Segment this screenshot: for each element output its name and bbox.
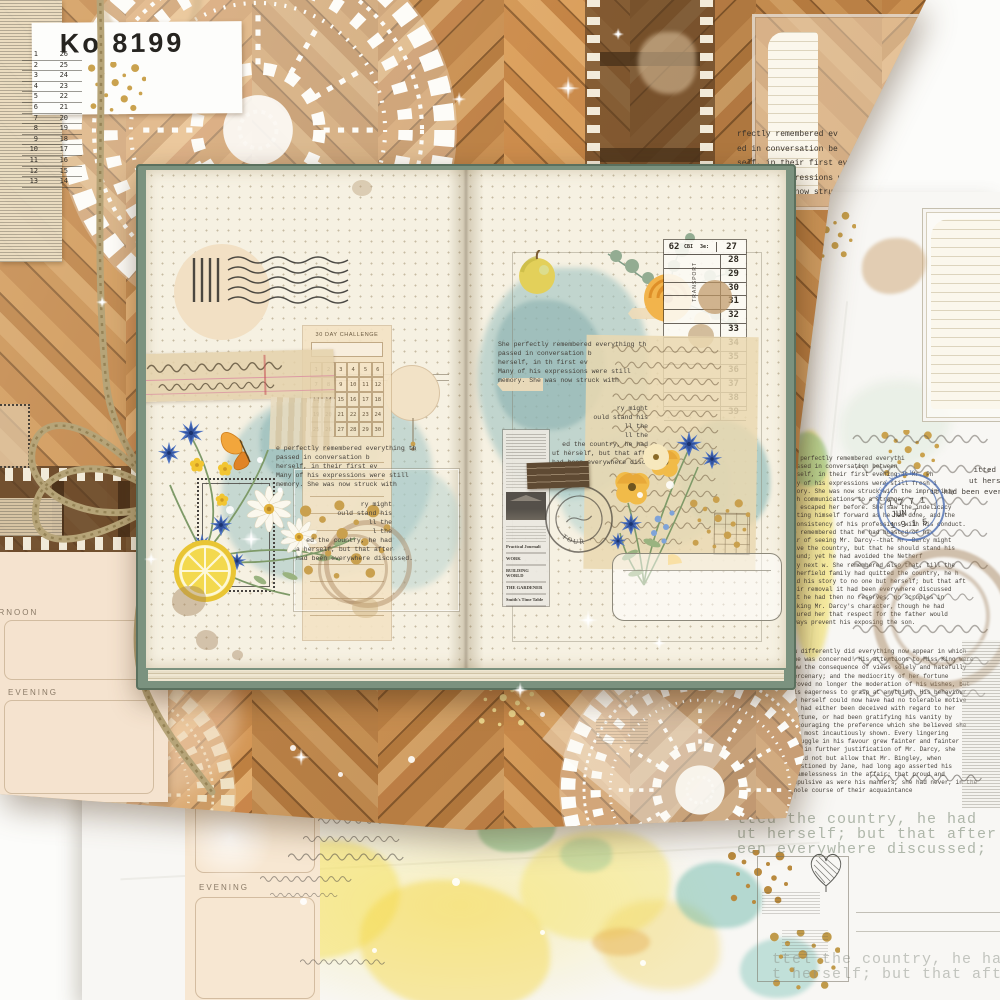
page-stack-edge xyxy=(148,670,784,681)
challenge-title: 30 DAY CHALLENGE xyxy=(303,332,391,338)
newsprint-lines xyxy=(506,524,546,542)
page-stain xyxy=(352,598,378,618)
postmark-wave-stamp xyxy=(188,252,363,308)
typed-fragment-a: e perfectly remembered everything thpass… xyxy=(276,444,416,489)
ledger-mid: CBI xyxy=(684,244,700,250)
typed-fragment-c: She perfectly remembered everything thpa… xyxy=(498,340,646,385)
old-book-spine xyxy=(527,461,590,489)
gold-splatter xyxy=(690,496,750,552)
page-stain xyxy=(352,180,372,196)
barcode-lines xyxy=(506,433,546,459)
apple-watercolor xyxy=(514,250,560,296)
ledger-left: 62 xyxy=(664,242,684,252)
blank-label xyxy=(612,553,782,621)
coffee-splotch xyxy=(698,280,732,314)
newspaper-entries: Practical JournaliWORKBUILDING WORLDTHE … xyxy=(506,544,546,609)
ledger-right: 27 xyxy=(716,242,746,252)
typed-fragment-b: ry mightould stand hisll thel theed the … xyxy=(296,500,392,563)
scrapbook-composition: e perfectly remembered everythiassed in … xyxy=(0,0,1000,1000)
ledger-mid2: 3e: xyxy=(700,244,716,250)
open-journal: 30 DAY CHALLENGE 12345678910111213141516… xyxy=(136,164,796,690)
journal-pages: 30 DAY CHALLENGE 12345678910111213141516… xyxy=(146,170,786,668)
coffee-splotch xyxy=(232,650,243,660)
coffee-splotch xyxy=(196,630,218,650)
cream-circle-small xyxy=(384,365,440,421)
